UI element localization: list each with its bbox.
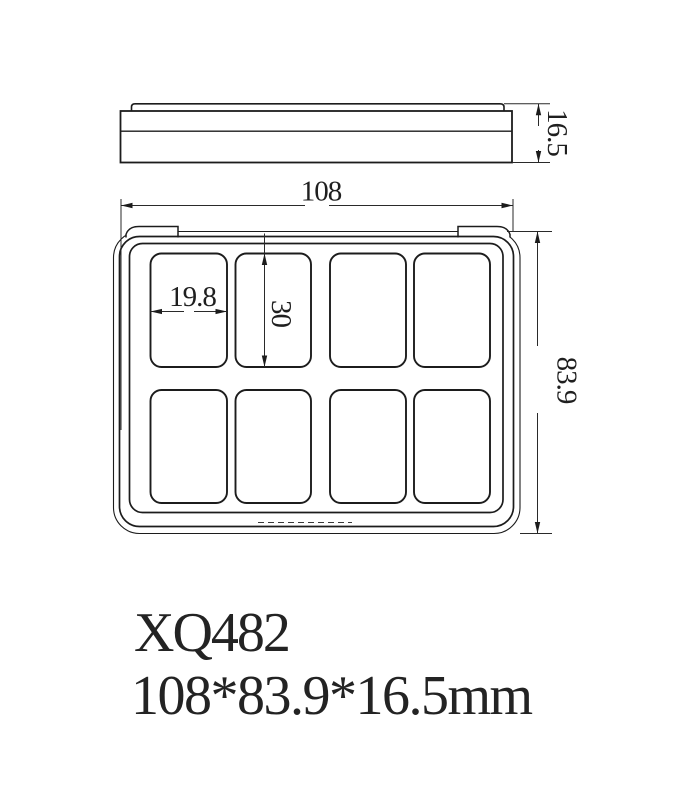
dim-arrow-right-icon (502, 203, 514, 208)
top-view (114, 227, 521, 534)
pan-pocket (330, 254, 406, 368)
dim-arrow-down-icon (262, 356, 267, 368)
technical-drawing-page: 16.5 (0, 0, 683, 809)
pan-pocket (330, 390, 406, 503)
dim-pan-width-label: 19.8 (169, 281, 216, 313)
size-label: 108*83.9*16.5mm (131, 664, 532, 728)
case-rim-outline (120, 237, 514, 527)
side-view (121, 104, 513, 163)
pan-pocket (414, 390, 490, 503)
dim-pan-height-label: 30 (265, 300, 297, 328)
dim-overall-width-label: 108 (301, 176, 342, 208)
dim-arrow-up-icon (262, 254, 267, 266)
pan-pocket (151, 390, 228, 503)
dim-arrow-left-icon (121, 203, 133, 208)
dim-overall-height: 16.5 (504, 104, 573, 163)
dim-overall-depth: 83.9 (507, 232, 583, 534)
dim-overall-depth-label: 83.9 (551, 357, 583, 404)
dim-arrow-left-icon (151, 309, 163, 314)
dim-pan-width: 19.8 (151, 281, 228, 314)
dim-arrow-down-icon (536, 151, 541, 163)
pan-pocket (236, 390, 312, 503)
pan-pocket (414, 254, 490, 368)
dim-arrow-up-icon (535, 232, 540, 244)
dim-arrow-down-icon (535, 522, 540, 534)
dim-arrow-right-icon (216, 309, 228, 314)
side-view-lid-top (132, 104, 505, 111)
model-code-label: XQ482 (134, 601, 289, 665)
side-view-body (121, 111, 513, 163)
case-outer-contour (114, 232, 521, 534)
dim-overall-height-label: 16.5 (541, 109, 573, 156)
dim-arrow-up-icon (536, 104, 541, 116)
